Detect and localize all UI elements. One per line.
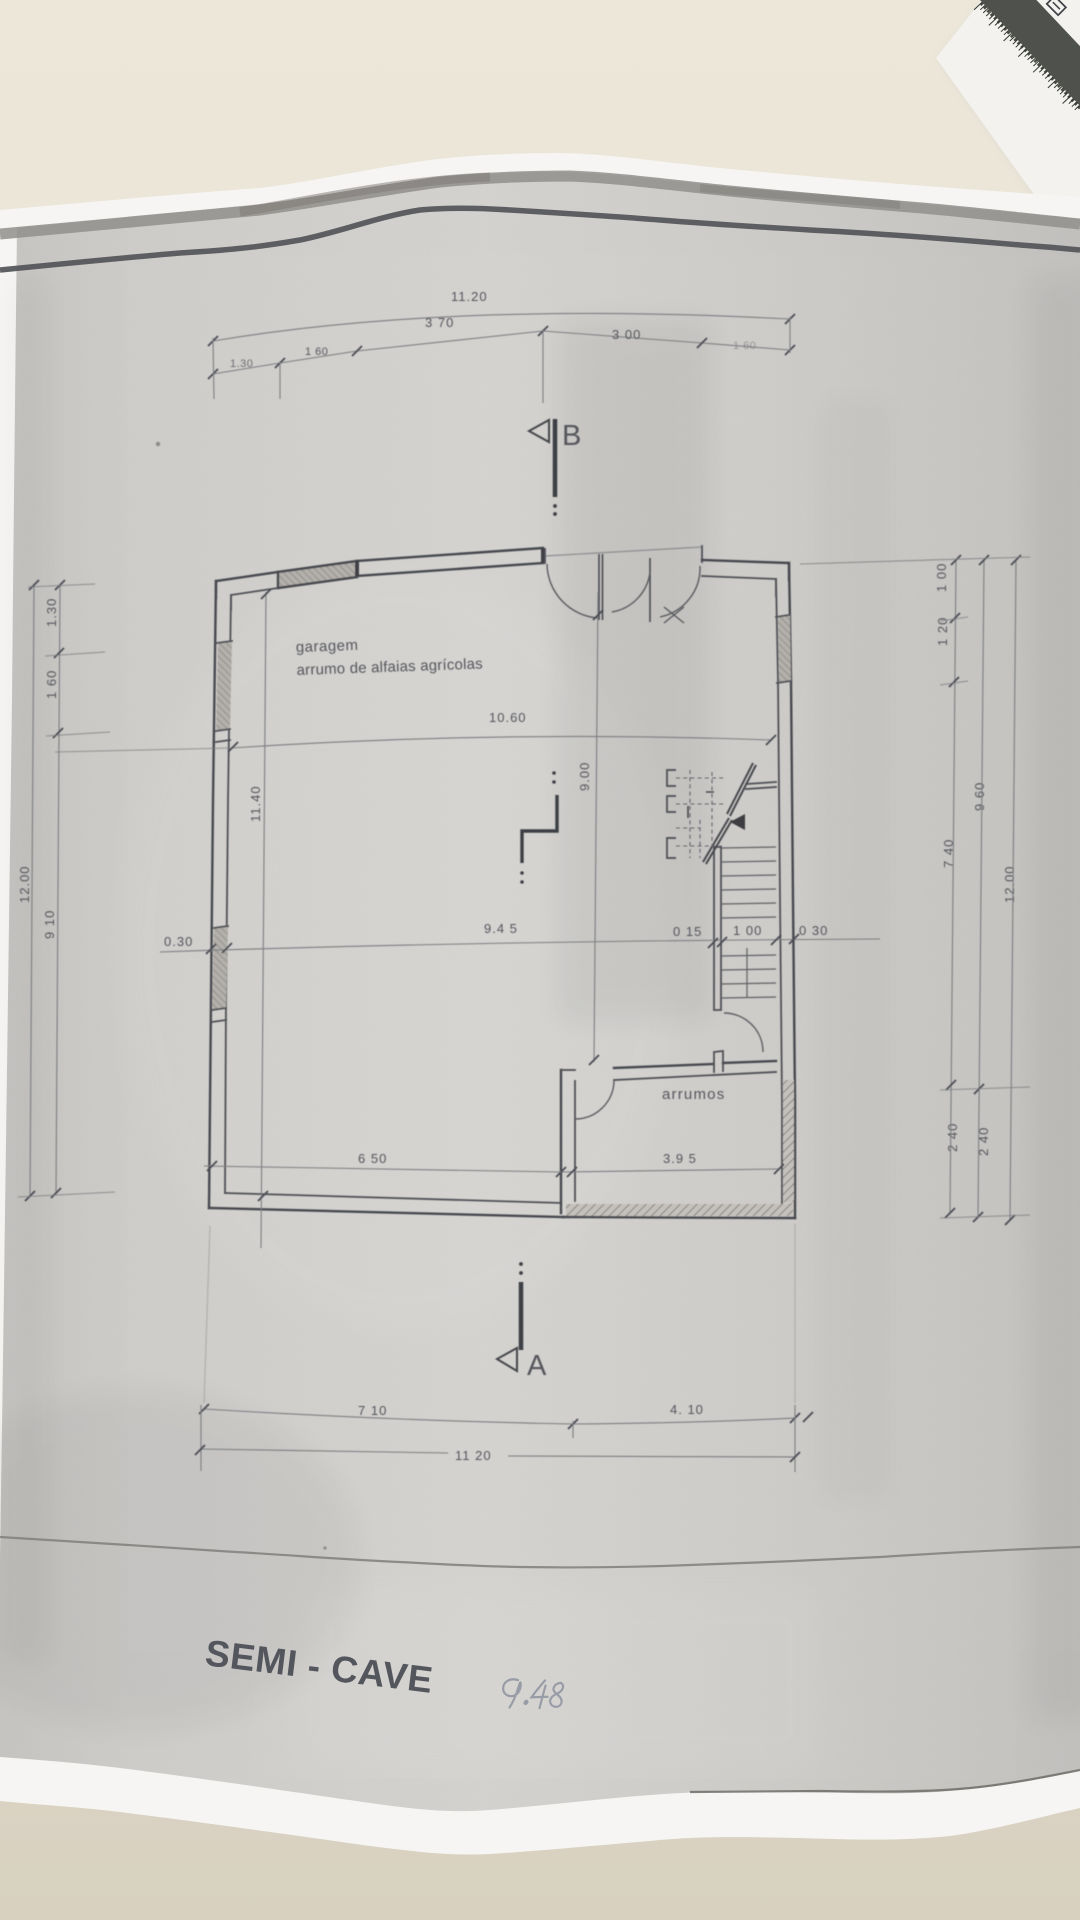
svg-text:9.00: 9.00 xyxy=(577,762,592,791)
svg-text:4. 10: 4. 10 xyxy=(670,1402,704,1417)
svg-text:3 70: 3 70 xyxy=(425,315,454,330)
svg-text:arrumos: arrumos xyxy=(662,1086,725,1103)
svg-text:1 00: 1 00 xyxy=(934,563,949,592)
svg-text:11 20: 11 20 xyxy=(455,1448,492,1463)
svg-text:7 10: 7 10 xyxy=(358,1403,387,1418)
svg-text:3.9 5: 3.9 5 xyxy=(663,1151,697,1166)
svg-text:9.4 5: 9.4 5 xyxy=(484,921,518,936)
svg-text:1 00: 1 00 xyxy=(733,923,762,938)
svg-text:2 40: 2 40 xyxy=(945,1123,960,1152)
svg-text:12.00: 12.00 xyxy=(1002,865,1017,903)
svg-text:9 60: 9 60 xyxy=(972,782,987,811)
svg-text:12.00: 12.00 xyxy=(17,865,32,903)
svg-text:6 50: 6 50 xyxy=(358,1151,387,1166)
svg-text:11.40: 11.40 xyxy=(248,785,263,822)
svg-text:1 60: 1 60 xyxy=(305,346,328,358)
svg-text:0.30: 0.30 xyxy=(164,934,193,949)
svg-text:1 60: 1 60 xyxy=(733,340,756,352)
svg-text:3 00: 3 00 xyxy=(612,327,641,342)
svg-text:B: B xyxy=(562,420,581,452)
svg-text:9 10: 9 10 xyxy=(42,910,57,939)
svg-text:0 30: 0 30 xyxy=(799,923,828,938)
svg-text:0 15: 0 15 xyxy=(673,924,702,939)
svg-text:1 60: 1 60 xyxy=(44,670,59,699)
svg-text:1.30: 1.30 xyxy=(44,598,59,627)
svg-text:11.20: 11.20 xyxy=(451,289,488,304)
svg-text:1.30: 1.30 xyxy=(230,358,253,370)
svg-text:garagem: garagem xyxy=(296,637,359,656)
svg-text:10.60: 10.60 xyxy=(489,710,527,725)
svg-text:A: A xyxy=(527,1350,547,1382)
